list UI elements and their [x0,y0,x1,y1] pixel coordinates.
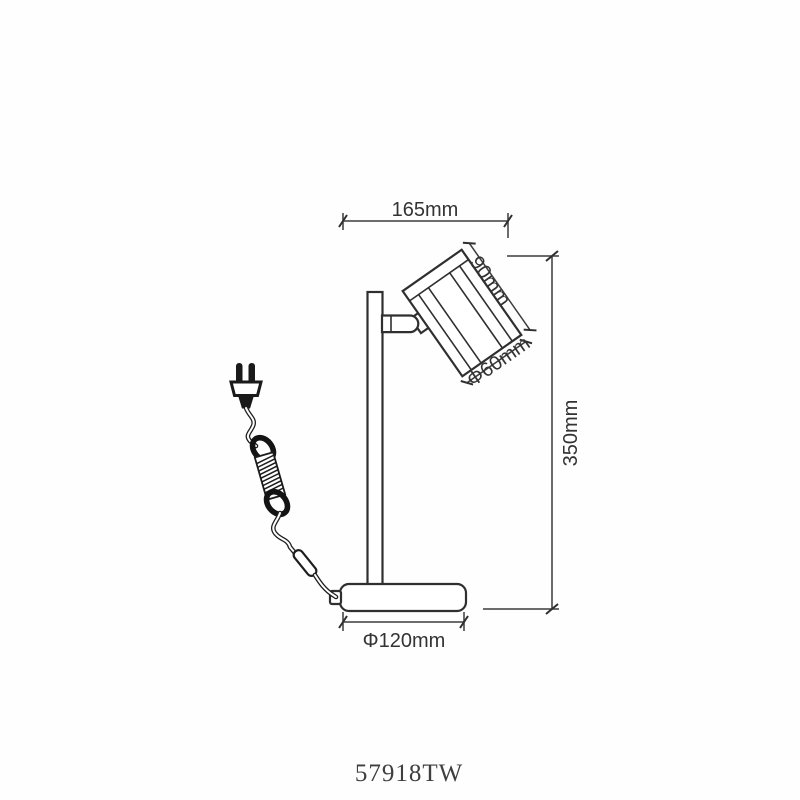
lamp-head-group: 90mm Φ60mm [397,236,546,394]
power-plug [231,363,261,409]
dimension-width: 165mm [339,199,512,238]
power-cord-assembly [231,363,336,597]
base-diameter-label: Φ120mm [363,630,446,652]
dimension-base-diameter: Φ120mm [339,612,468,652]
lamp-figure: 90mm Φ60mm [330,236,546,611]
lamp-base [340,584,466,611]
lamp-arm [382,316,418,333]
model-number: 57918TW [355,760,463,787]
lamp-dimension-drawing: 90mm Φ60mm [0,0,800,800]
technical-drawing-page: 90mm Φ60mm [0,0,800,800]
plug-body [231,382,261,396]
width-label: 165mm [392,199,459,221]
height-label: 350mm [560,400,582,467]
cord-loop-bottom [262,488,292,519]
lamp-pole [368,292,383,586]
